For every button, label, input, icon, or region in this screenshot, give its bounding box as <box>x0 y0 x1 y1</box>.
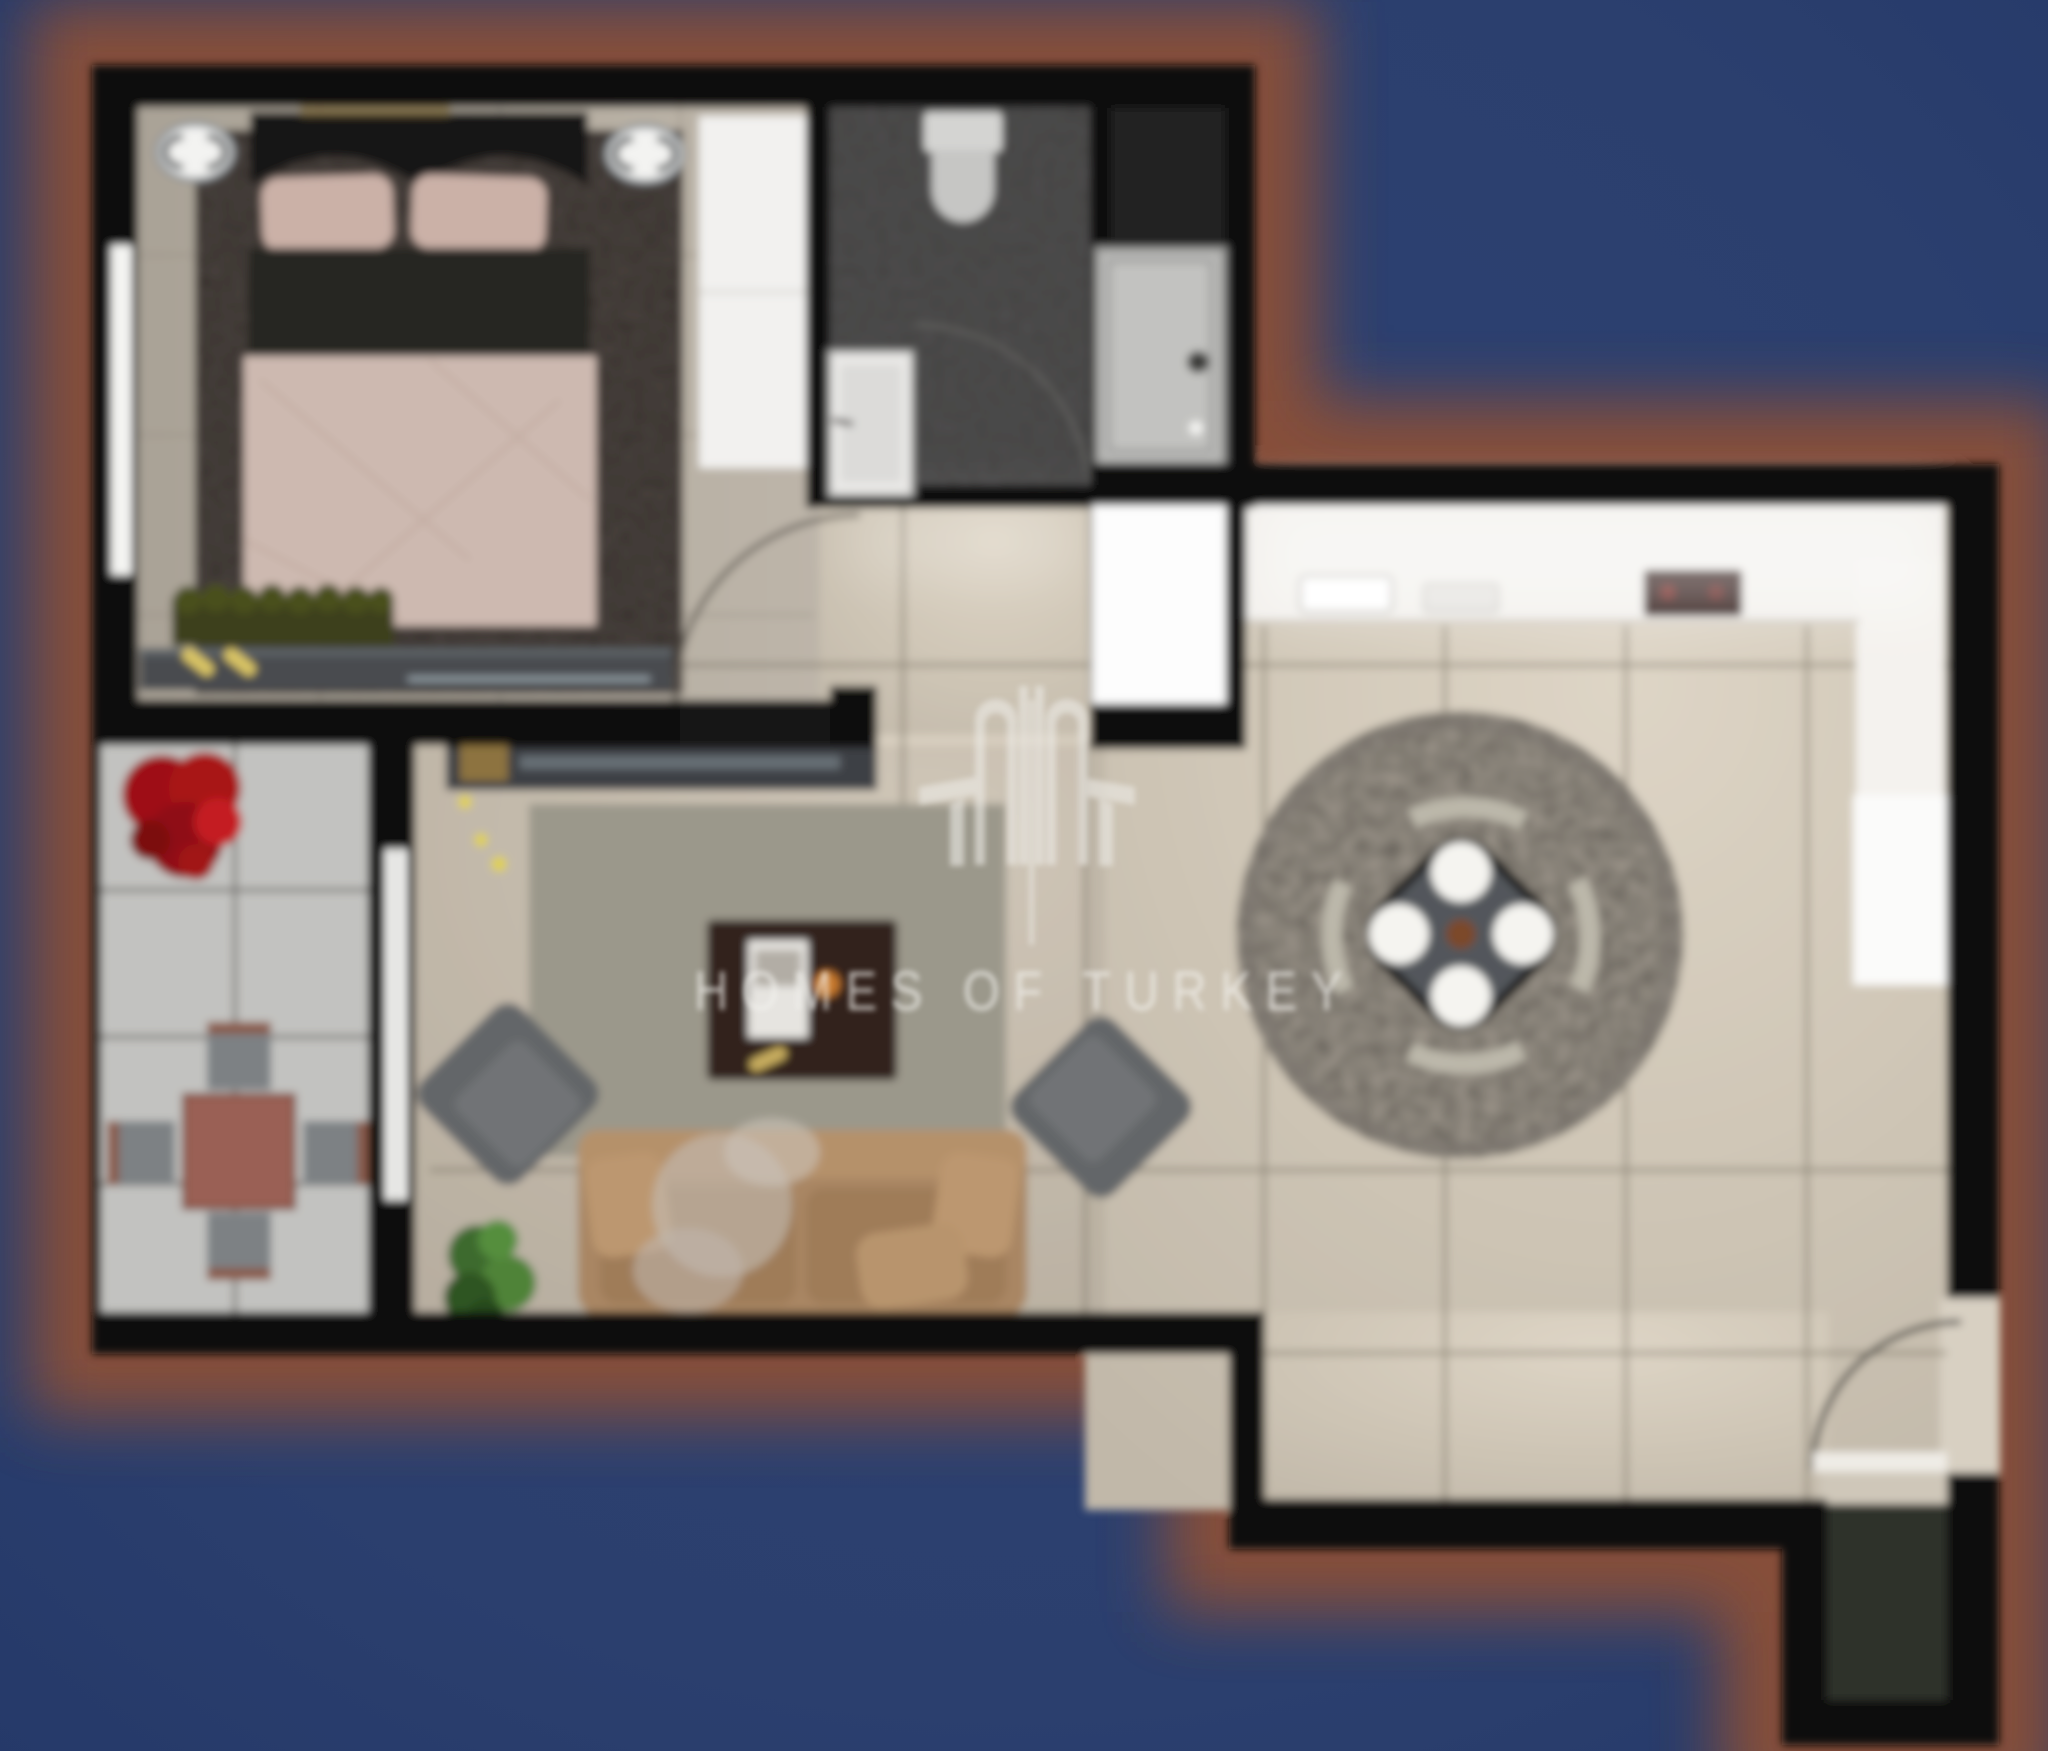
svg-text:HOMES OF TURKEY: HOMES OF TURKEY <box>694 959 1356 1022</box>
